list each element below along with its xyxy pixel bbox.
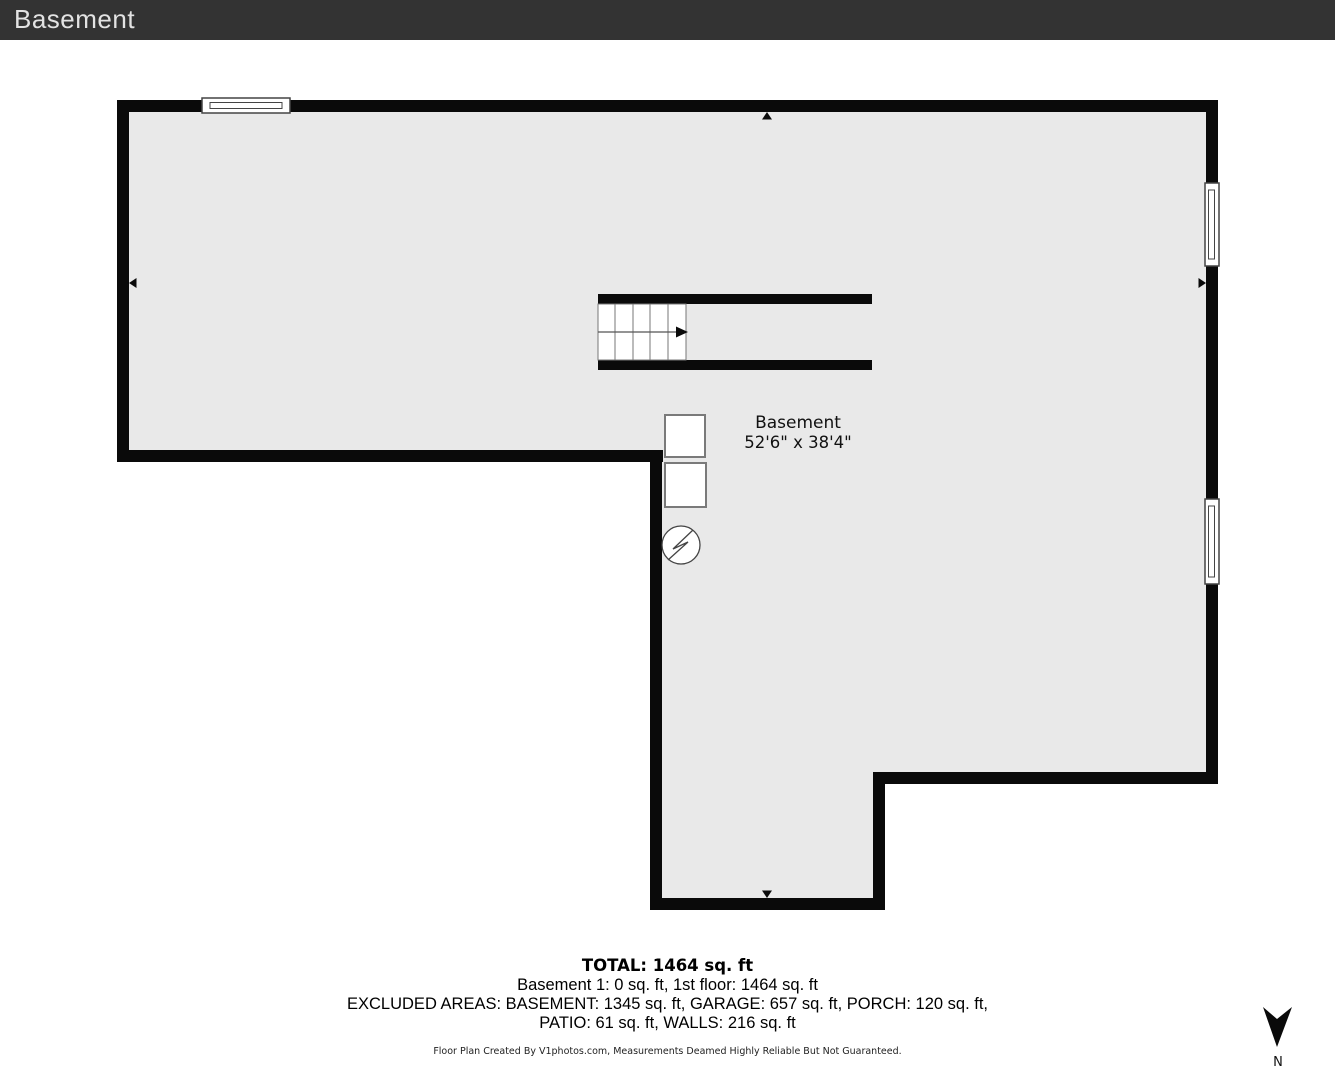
window-right-upper-icon: [1205, 183, 1219, 266]
excluded-areas-line-2: PATIO: 61 sq. ft, WALLS: 216 sq. ft: [0, 1014, 1335, 1033]
stair-wall-bottom: [598, 360, 872, 370]
north-label: N: [1256, 1055, 1300, 1070]
floor-plan: [0, 0, 1335, 1080]
wall-lower-right: [873, 772, 885, 910]
wall-lower-left: [650, 450, 662, 910]
page: Basement: [0, 0, 1335, 1080]
stair-wall-top: [598, 294, 872, 304]
room-name: Basement: [648, 413, 948, 433]
wall-left: [117, 100, 129, 462]
electrical-panel-icon: [662, 526, 700, 564]
window-right-lower-icon: [1205, 499, 1219, 584]
disclaimer-text: Floor Plan Created By V1photos.com, Meas…: [0, 1046, 1335, 1057]
wall-left-section-bottom: [117, 450, 663, 462]
floor-areas-line: Basement 1: 0 sq. ft, 1st floor: 1464 sq…: [0, 976, 1335, 995]
area-summary: TOTAL: 1464 sq. ft Basement 1: 0 sq. ft,…: [0, 956, 1335, 1057]
total-area: TOTAL: 1464 sq. ft: [0, 956, 1335, 976]
room-dimensions: 52'6" x 38'4": [648, 433, 948, 453]
utility-square-2: [665, 463, 706, 507]
wall-step: [873, 772, 1218, 784]
excluded-areas-line-1: EXCLUDED AREAS: BASEMENT: 1345 sq. ft, G…: [0, 995, 1335, 1014]
north-compass: N: [1256, 1003, 1300, 1070]
north-arrow-icon: [1256, 1003, 1300, 1049]
window-top-icon: [202, 98, 290, 113]
room-label: Basement 52'6" x 38'4": [648, 413, 948, 453]
wall-lower-bottom: [650, 898, 885, 910]
